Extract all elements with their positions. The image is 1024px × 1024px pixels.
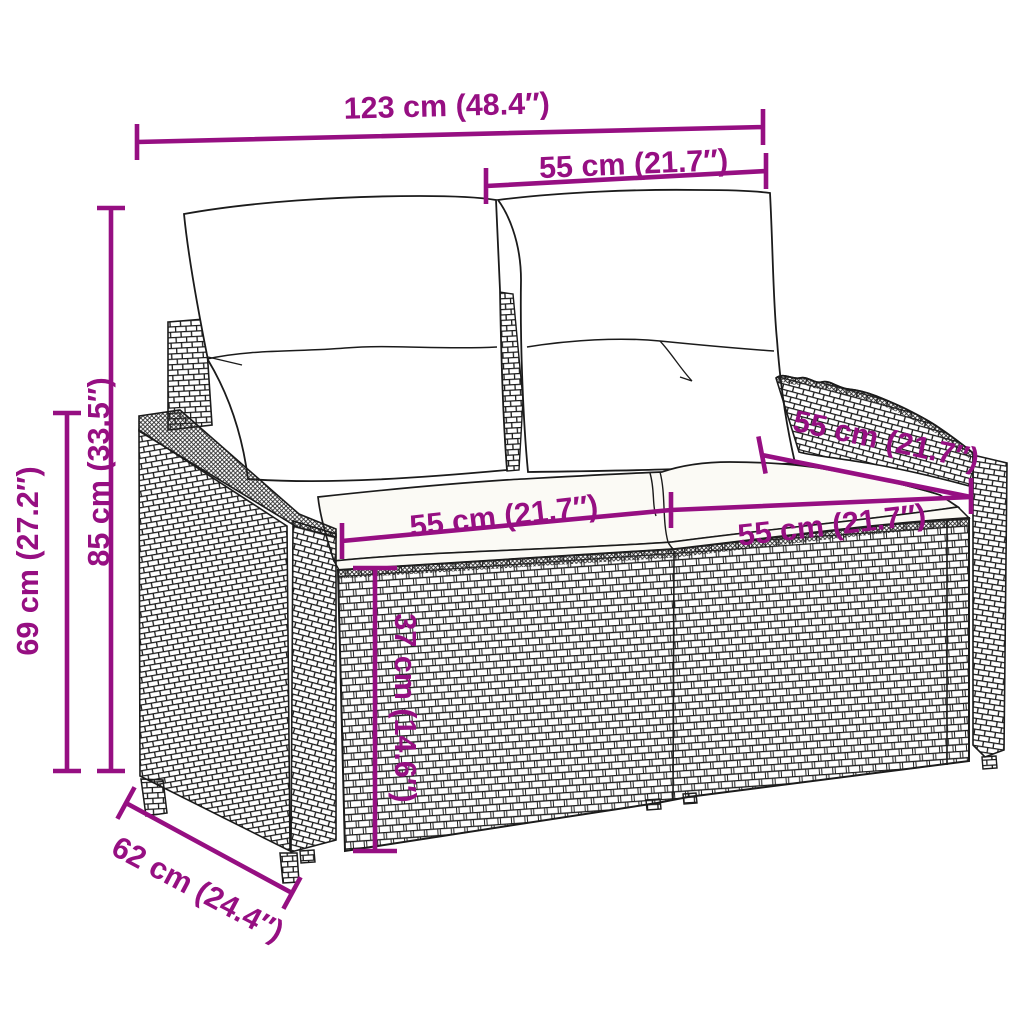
- svg-text:85 cm (33.5″): 85 cm (33.5″): [82, 377, 116, 566]
- svg-text:69 cm (27.2″): 69 cm (27.2″): [11, 466, 45, 655]
- svg-text:37 cm (14.6″): 37 cm (14.6″): [388, 613, 422, 802]
- svg-text:123 cm (48.4″): 123 cm (48.4″): [343, 86, 550, 125]
